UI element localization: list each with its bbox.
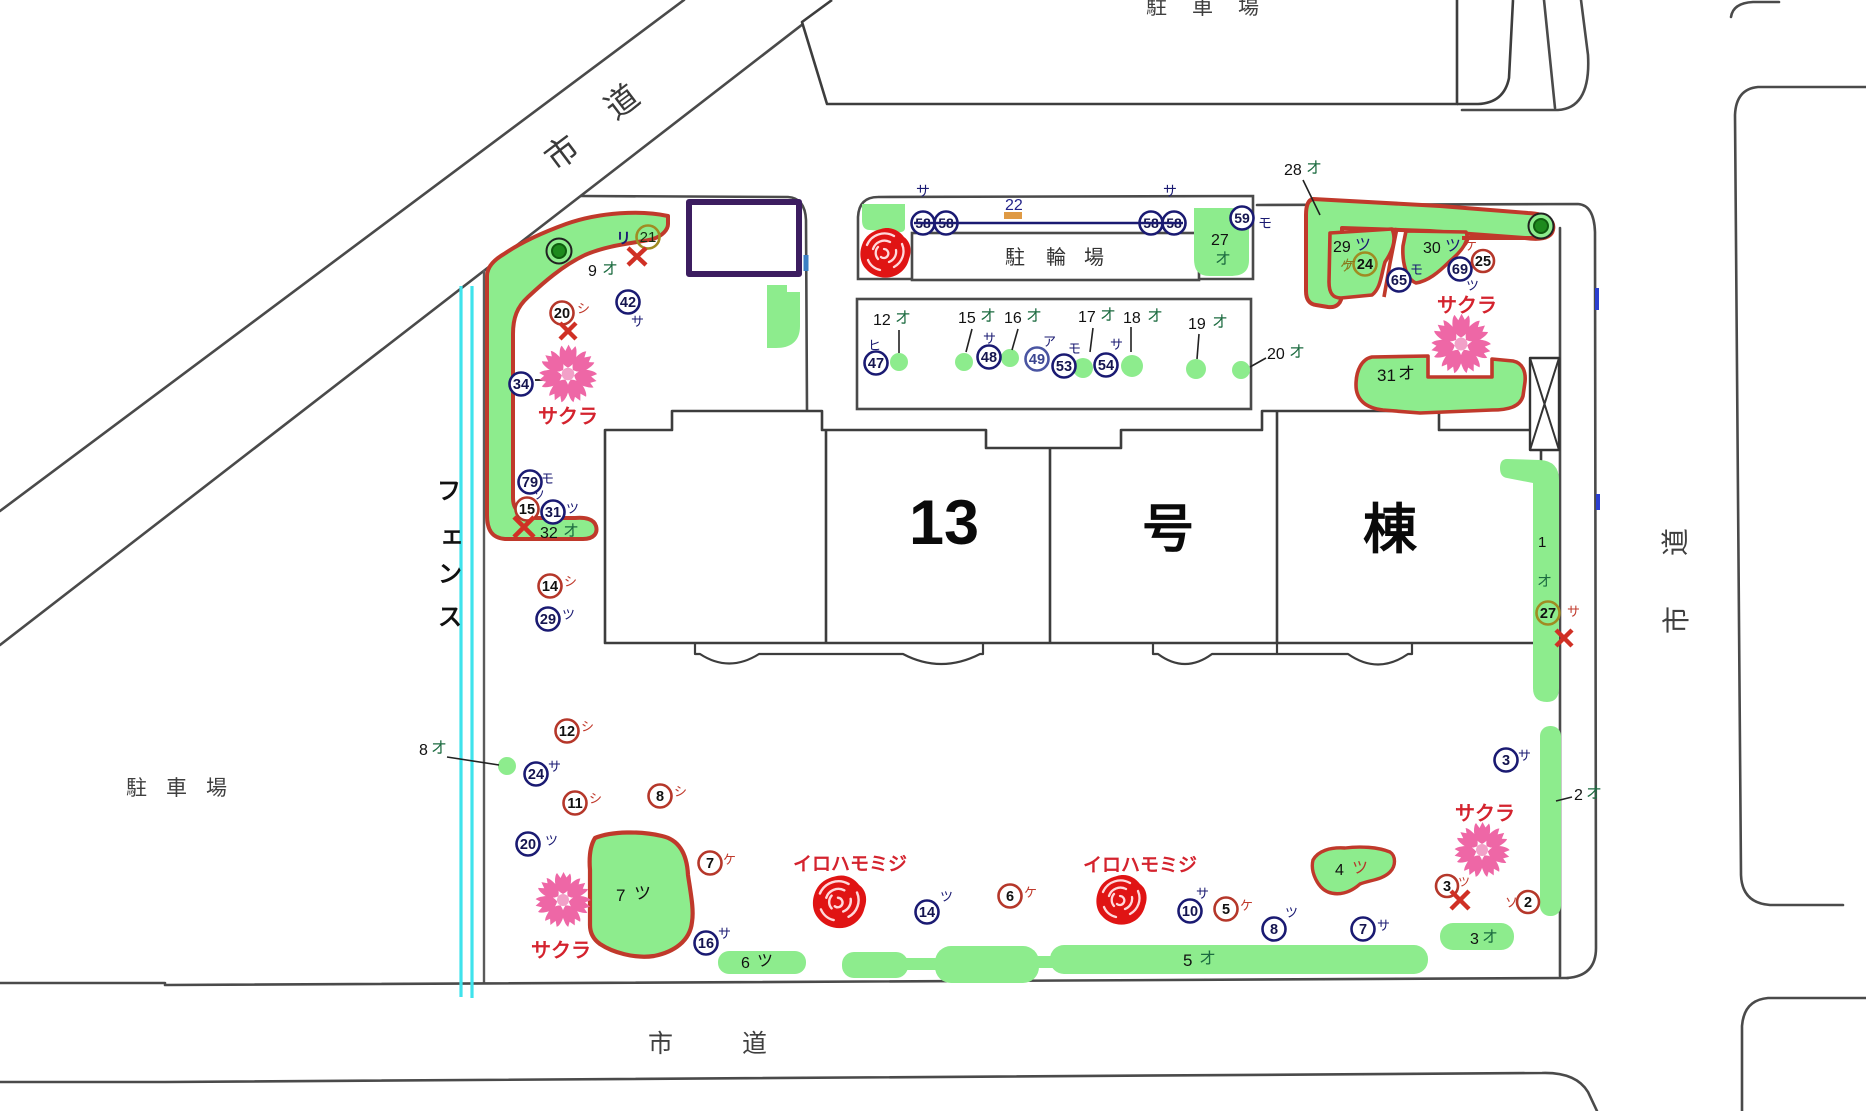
svg-text:車: 車 xyxy=(166,777,187,800)
svg-text:サクラ: サクラ xyxy=(538,405,598,428)
svg-text:8: 8 xyxy=(419,742,428,759)
svg-text:3: 3 xyxy=(1470,931,1479,948)
svg-text:27: 27 xyxy=(1211,232,1229,249)
svg-text:34: 34 xyxy=(513,377,529,393)
svg-text:サ: サ xyxy=(1377,918,1390,933)
svg-text:8: 8 xyxy=(1270,922,1278,938)
svg-text:サクラ: サクラ xyxy=(1455,802,1515,825)
svg-text:オ: オ xyxy=(1306,160,1322,177)
svg-text:シ: シ xyxy=(581,719,594,734)
svg-text:30: 30 xyxy=(1423,240,1441,257)
svg-text:17: 17 xyxy=(1078,309,1096,326)
svg-text:ケ: ケ xyxy=(1024,885,1037,900)
svg-text:オ: オ xyxy=(1586,785,1602,802)
svg-text:2: 2 xyxy=(1574,787,1583,804)
svg-text:駐: 駐 xyxy=(1005,246,1025,269)
svg-text:16: 16 xyxy=(1004,310,1022,327)
svg-text:ス: ス xyxy=(438,604,462,631)
svg-text:2: 2 xyxy=(1524,895,1532,911)
svg-text:サ: サ xyxy=(631,314,644,329)
svg-text:47: 47 xyxy=(868,356,884,372)
svg-text:59: 59 xyxy=(1234,210,1250,226)
svg-text:20: 20 xyxy=(520,837,536,853)
svg-text:市: 市 xyxy=(538,128,587,177)
svg-text:ツ: ツ xyxy=(545,833,558,848)
svg-text:ケ: ケ xyxy=(723,852,736,867)
svg-text:サ: サ xyxy=(983,331,996,346)
svg-text:25: 25 xyxy=(1475,254,1491,270)
svg-text:7: 7 xyxy=(706,856,714,872)
svg-text:オ: オ xyxy=(431,740,447,757)
svg-text:号: 号 xyxy=(1142,501,1194,559)
svg-text:ソ: ソ xyxy=(1505,895,1518,910)
svg-text:ケ: ケ xyxy=(1464,238,1477,253)
svg-text:モ: モ xyxy=(1410,262,1423,277)
svg-text:サ: サ xyxy=(548,759,561,774)
svg-text:オ: オ xyxy=(980,308,996,325)
svg-text:車: 車 xyxy=(1192,0,1213,19)
svg-text:ケ: ケ xyxy=(1340,259,1353,274)
svg-text:棟: 棟 xyxy=(1363,500,1418,560)
svg-text:48: 48 xyxy=(981,350,997,366)
svg-text:13: 13 xyxy=(909,488,979,558)
svg-text:サ: サ xyxy=(1110,337,1123,352)
svg-text:サクラ: サクラ xyxy=(531,939,591,962)
svg-text:ツ: ツ xyxy=(940,889,953,904)
svg-text:オ: オ xyxy=(1199,949,1216,968)
svg-text:リ: リ xyxy=(616,230,631,247)
svg-text:31: 31 xyxy=(1377,366,1396,385)
svg-text:31: 31 xyxy=(545,505,561,521)
svg-text:駐: 駐 xyxy=(126,777,147,800)
svg-text:道: 道 xyxy=(1660,528,1691,556)
svg-text:14: 14 xyxy=(542,579,558,595)
svg-text:5: 5 xyxy=(1183,951,1192,970)
svg-text:21: 21 xyxy=(640,229,657,246)
svg-text:オ: オ xyxy=(563,523,579,540)
svg-text:4: 4 xyxy=(1335,862,1344,879)
svg-text:ツ: ツ xyxy=(562,607,575,622)
svg-text:3: 3 xyxy=(1502,753,1510,769)
svg-text:22: 22 xyxy=(1005,197,1023,214)
svg-text:市: 市 xyxy=(648,1030,673,1058)
svg-text:イロハモミジ: イロハモミジ xyxy=(793,854,907,875)
svg-text:シ: シ xyxy=(589,791,602,806)
svg-text:20: 20 xyxy=(554,306,570,322)
svg-text:1: 1 xyxy=(1538,534,1546,551)
svg-text:10: 10 xyxy=(1182,904,1198,920)
svg-text:オ: オ xyxy=(1537,573,1552,590)
svg-text:オ: オ xyxy=(1215,251,1231,268)
svg-text:サ: サ xyxy=(1518,748,1531,763)
svg-text:69: 69 xyxy=(1452,262,1468,278)
svg-text:オ: オ xyxy=(895,310,911,327)
svg-text:オ: オ xyxy=(1482,929,1498,946)
svg-text:ツ: ツ xyxy=(1458,875,1470,889)
svg-text:18: 18 xyxy=(1123,310,1141,327)
svg-text:7: 7 xyxy=(1359,922,1367,938)
svg-text:14: 14 xyxy=(919,905,935,921)
svg-text:駐: 駐 xyxy=(1146,0,1167,19)
svg-text:ツ: ツ xyxy=(1466,278,1479,293)
svg-text:シ: シ xyxy=(674,784,687,799)
svg-text:ア: ア xyxy=(1043,334,1056,349)
svg-text:49: 49 xyxy=(1029,352,1045,368)
svg-text:20: 20 xyxy=(1267,346,1285,363)
svg-text:ツ: ツ xyxy=(566,501,579,516)
svg-text:16: 16 xyxy=(698,936,714,952)
svg-text:ツ: ツ xyxy=(1445,238,1461,255)
svg-text:場: 場 xyxy=(206,777,227,800)
svg-text:オ: オ xyxy=(1212,314,1228,331)
svg-text:サ: サ xyxy=(1163,183,1177,199)
svg-text:輪: 輪 xyxy=(1046,246,1066,269)
svg-text:54: 54 xyxy=(1098,358,1114,374)
svg-text:32: 32 xyxy=(540,525,558,542)
svg-text:65: 65 xyxy=(1391,273,1407,289)
svg-text:サ: サ xyxy=(1196,886,1209,901)
svg-text:29: 29 xyxy=(540,612,556,628)
svg-text:サ: サ xyxy=(1567,604,1580,619)
svg-text:シ: シ xyxy=(577,301,590,316)
svg-text:市: 市 xyxy=(1661,606,1692,634)
svg-text:オ: オ xyxy=(1147,308,1163,325)
svg-text:オ: オ xyxy=(602,261,618,278)
svg-text:場: 場 xyxy=(1238,0,1259,19)
svg-text:29: 29 xyxy=(1333,239,1351,256)
svg-text:12: 12 xyxy=(873,312,891,329)
svg-text:5: 5 xyxy=(1222,902,1230,918)
svg-text:11: 11 xyxy=(567,796,582,812)
svg-text:ツ: ツ xyxy=(1355,237,1371,254)
svg-text:12: 12 xyxy=(559,724,575,740)
svg-text:27: 27 xyxy=(1540,606,1556,622)
svg-text:ン: ン xyxy=(438,561,462,588)
svg-text:ツ: ツ xyxy=(757,953,773,970)
svg-text:フ: フ xyxy=(437,478,461,505)
svg-text:道: 道 xyxy=(598,77,647,126)
svg-text:42: 42 xyxy=(620,295,636,311)
svg-text:シ: シ xyxy=(564,574,577,589)
svg-text:サ: サ xyxy=(718,926,731,941)
svg-text:オ: オ xyxy=(1100,307,1116,324)
svg-text:ツ: ツ xyxy=(634,884,651,903)
svg-text:28: 28 xyxy=(1284,162,1302,179)
svg-text:サ: サ xyxy=(916,183,930,199)
svg-text:7: 7 xyxy=(616,886,625,905)
svg-text:イロハモミジ: イロハモミジ xyxy=(1083,855,1197,876)
svg-text:8: 8 xyxy=(656,789,664,805)
svg-text:24: 24 xyxy=(1357,257,1373,273)
svg-text:ケ: ケ xyxy=(1240,898,1253,913)
svg-text:オ: オ xyxy=(1398,364,1415,383)
svg-text:モ: モ xyxy=(541,471,554,486)
svg-text:ヒ: ヒ xyxy=(868,338,881,353)
svg-text:6: 6 xyxy=(1006,889,1014,905)
svg-text:15: 15 xyxy=(958,310,976,327)
svg-text:15: 15 xyxy=(519,502,535,518)
svg-text:サクラ: サクラ xyxy=(1437,294,1497,317)
svg-text:モ: モ xyxy=(1258,215,1272,231)
svg-text:53: 53 xyxy=(1056,359,1072,375)
svg-text:24: 24 xyxy=(528,767,544,783)
svg-text:場: 場 xyxy=(1084,246,1104,269)
svg-text:道: 道 xyxy=(742,1030,767,1058)
svg-text:オ: オ xyxy=(1289,344,1305,361)
svg-text:ェ: ェ xyxy=(440,522,464,549)
svg-text:19: 19 xyxy=(1188,316,1206,333)
svg-text:9: 9 xyxy=(588,263,597,280)
svg-text:ツ: ツ xyxy=(1352,860,1368,877)
svg-text:ツ: ツ xyxy=(1285,905,1298,920)
svg-text:モ: モ xyxy=(1068,341,1081,356)
svg-text:6: 6 xyxy=(741,955,750,972)
svg-text:オ: オ xyxy=(1026,308,1042,325)
